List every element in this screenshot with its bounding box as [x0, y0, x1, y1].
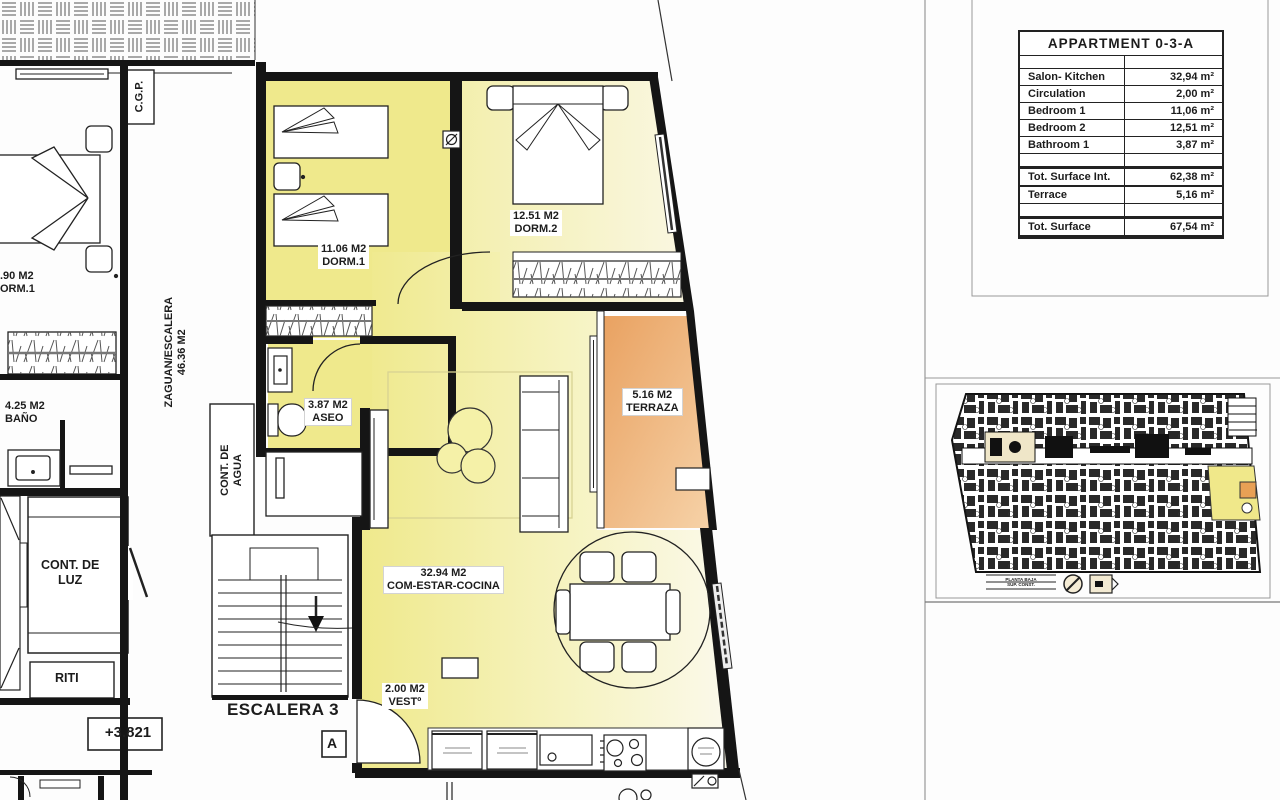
table-total-row: Tot. Surface 67,54 m²: [1020, 217, 1222, 237]
dorm1-area: 11.06 M2: [321, 243, 366, 256]
table-row: Bedroom 1 11,06 m²: [1020, 103, 1222, 120]
stove: [604, 735, 646, 771]
terraza-name: TERRAZA: [626, 402, 679, 415]
table-title: APPARTMENT 0-3-A: [1020, 32, 1222, 56]
row-value: 5,16 m²: [1125, 187, 1222, 203]
cgp-text: C.G.P.: [133, 67, 146, 127]
label-level: +3.821: [92, 724, 164, 742]
label-zaguan: ZAGUAN/ESCALERA 46.36 M2: [163, 287, 189, 417]
row-value: 62,38 m²: [1125, 169, 1222, 185]
table-subtotal-row: Tot. Surface Int. 62,38 m²: [1020, 167, 1222, 187]
wall-zaguan-west: [120, 64, 128, 800]
dorm1-wardrobe: [266, 306, 372, 336]
zaguan-area: 46.36 M2: [176, 287, 189, 417]
label-vest: 2.00 M2 VESTº: [382, 683, 428, 709]
electrical-symbol: [443, 131, 460, 148]
service-shaft: [0, 496, 20, 690]
neighbor-bath-fixtures: [0, 374, 128, 496]
cont-luz-line1: CONT. DE: [41, 558, 99, 573]
staircase: [212, 535, 352, 700]
plot-boundary-line: [658, 0, 672, 81]
key-plan-legend-icon: [1090, 575, 1118, 593]
row-value: 3,87 m²: [1125, 137, 1222, 153]
aseo-area: 3.87 M2: [308, 399, 348, 412]
escalera-text: ESCALERA 3: [213, 700, 353, 720]
zaguan-name: ZAGUAN/ESCALERA: [163, 287, 176, 417]
bano-area: 4.25 M2: [5, 400, 45, 413]
level-text: +3.821: [95, 724, 161, 742]
north-compass-icon: [1064, 575, 1082, 593]
table-row: Circulation 2,00 m²: [1020, 86, 1222, 103]
row-label: Bedroom 2: [1020, 120, 1125, 136]
salon-name: COM-ESTAR-COCINA: [387, 580, 500, 593]
fridge: [688, 728, 724, 770]
table-row: Salon- Kitchen 32,94 m²: [1020, 69, 1222, 86]
label-cont-agua: CONT. DE AGUA: [219, 415, 245, 525]
key-plan: [952, 394, 1260, 593]
row-label: Tot. Surface Int.: [1020, 169, 1125, 185]
table-row: Terrace 5,16 m²: [1020, 187, 1222, 204]
label-dorm1: 11.06 M2 DORM.1: [318, 243, 369, 269]
row-value: 11,06 m²: [1125, 103, 1222, 119]
table-spacer: [1020, 56, 1222, 69]
floor-plan-sheet: 11.06 M2 DORM.1 12.51 M2 DORM.2 3.87 M2 …: [0, 0, 1280, 800]
row-value: 2,00 m²: [1125, 86, 1222, 102]
lower-floor-fragment: [0, 770, 152, 800]
key-plan-highlight-unit: [1208, 466, 1260, 520]
lower-apartment-fragment: [447, 782, 651, 800]
salon-area: 32.94 M2: [387, 567, 500, 580]
label-riti: RITI: [52, 671, 82, 686]
vest-closet: [266, 452, 362, 516]
label-escalera: ESCALERA 3: [210, 700, 356, 720]
sink: [540, 735, 592, 765]
row-label: Terrace: [1020, 187, 1125, 203]
meter-box: [692, 774, 718, 788]
label-dorm2: 12.51 M2 DORM.2: [510, 210, 562, 236]
dorm1-name: DORM.1: [321, 256, 366, 269]
table-spacer: [1020, 204, 1222, 217]
vest-area: 2.00 M2: [385, 683, 425, 696]
label-cont-luz: CONT. DE LUZ: [38, 558, 102, 588]
table-spacer: [1020, 154, 1222, 167]
table-row: Bedroom 2 12,51 m²: [1020, 120, 1222, 137]
neighbor-apartment: [0, 69, 232, 278]
kitchen-counter: [428, 728, 724, 771]
neighbor-wardrobe: [8, 332, 116, 374]
plot-boundary-line: [739, 770, 746, 800]
label-bano: 4.25 M2 BAÑO: [2, 400, 48, 426]
dorm2-area: 12.51 M2: [513, 210, 559, 223]
label-terraza: 5.16 M2 TERRAZA: [622, 388, 683, 416]
label-salon: 32.94 M2 COM-ESTAR-COCINA: [383, 566, 504, 594]
row-label: Bedroom 1: [1020, 103, 1125, 119]
row-value: 67,54 m²: [1125, 219, 1222, 235]
bano-name: BAÑO: [5, 413, 45, 426]
neighbor-dorm-name: ORM.1: [0, 283, 35, 296]
row-label: Bathroom 1: [1020, 137, 1125, 153]
dorm2-wardrobe: [513, 252, 681, 297]
cont-luz-line2: LUZ: [41, 573, 99, 588]
aseo-name: ASEO: [308, 412, 348, 425]
label-aseo: 3.87 M2 ASEO: [304, 398, 352, 426]
neighbor-dorm-area: .90 M2: [0, 270, 35, 283]
vest-name: VESTº: [385, 696, 425, 709]
key-plan-caption-line2: SUP. CONST.: [984, 582, 1058, 588]
cont-agua-line2: AGUA: [232, 415, 245, 525]
row-label: Salon- Kitchen: [1020, 69, 1125, 85]
wall: [0, 698, 130, 705]
pavement-hatch: [0, 0, 255, 66]
table-row: Bathroom 1 3,87 m²: [1020, 137, 1222, 154]
riti-text: RITI: [55, 671, 79, 686]
apartment-area-table: APPARTMENT 0-3-A Salon- Kitchen 32,94 m²…: [1018, 30, 1224, 239]
row-label: Tot. Surface: [1020, 219, 1125, 235]
row-value: 12,51 m²: [1125, 120, 1222, 136]
label-section-mark: A: [327, 735, 337, 752]
key-plan-stair: [1228, 398, 1257, 436]
label-cgp: C.G.P.: [133, 67, 146, 127]
wall-zaguan-east: [256, 62, 266, 457]
label-neighbor-dorm: .90 M2 ORM.1: [0, 270, 35, 296]
section-mark-text: A: [327, 735, 337, 752]
row-label: Circulation: [1020, 86, 1125, 102]
dorm2-name: DORM.2: [513, 223, 559, 236]
cont-agua-line1: CONT. DE: [219, 415, 232, 525]
key-plan-caption: PLANTA BAJA SUP. CONST.: [984, 577, 1058, 588]
terraza-area: 5.16 M2: [626, 389, 679, 402]
row-value: 32,94 m²: [1125, 69, 1222, 85]
